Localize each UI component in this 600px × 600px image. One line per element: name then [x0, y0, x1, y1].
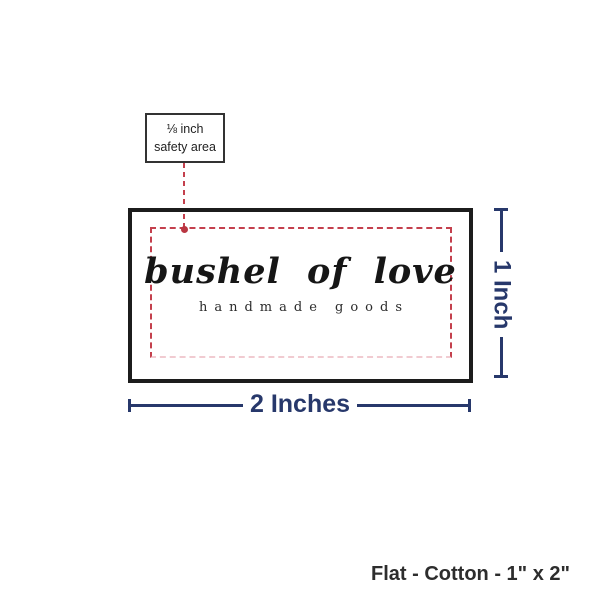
brand-tagline: handmade goods [199, 300, 409, 315]
width-dimension-start-cap [128, 399, 131, 412]
callout-text-line1: ⅛ inch [167, 120, 204, 138]
product-spec-text: Flat - Cotton - 1" x 2" [371, 563, 570, 586]
label-artwork: bushel of love handmade goods [132, 212, 469, 379]
callout-text-line2: safety area [154, 138, 216, 156]
brand-name: bushel of love [144, 251, 457, 292]
width-dimension-label: 2 Inches [243, 387, 357, 422]
height-dimension-end-cap [494, 375, 508, 378]
height-dimension-label: 1 Inch [484, 252, 519, 337]
safety-area-callout: ⅛ inch safety area [145, 113, 225, 163]
safety-area-marker-dot [181, 226, 188, 233]
label-spec-diagram: ⅛ inch safety area bushel of love handma… [0, 0, 600, 600]
width-dimension-end-cap [468, 399, 471, 412]
height-dimension-start-cap [494, 208, 508, 211]
